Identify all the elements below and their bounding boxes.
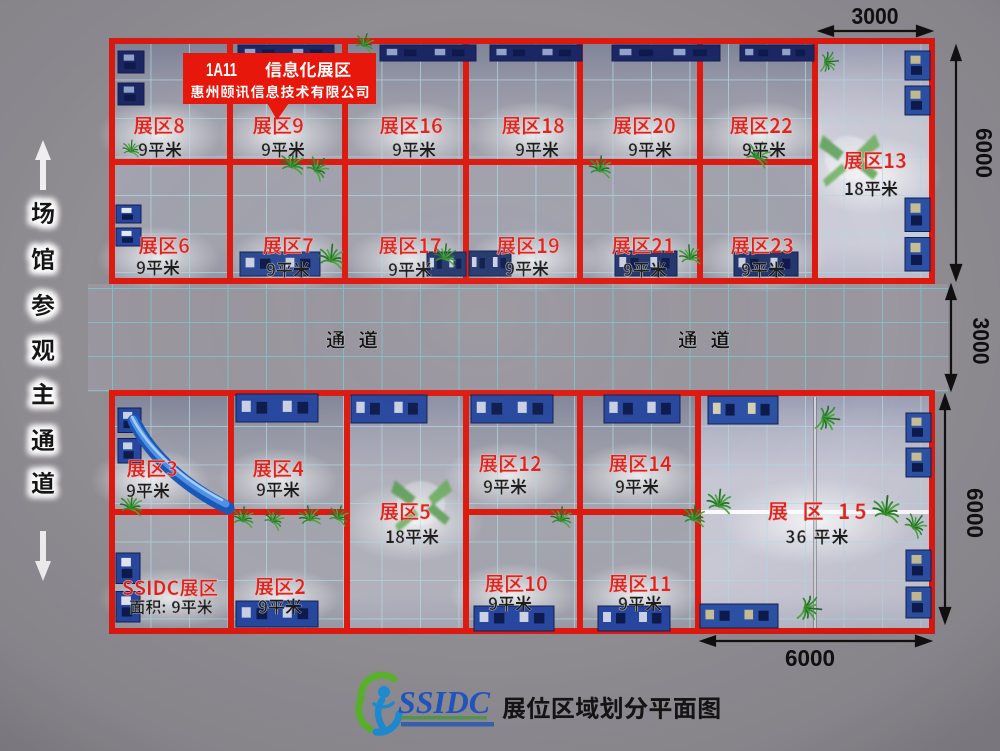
- svg-text:3000: 3000: [852, 3, 899, 29]
- svg-text:6000: 6000: [962, 488, 988, 538]
- svg-text:6000: 6000: [971, 128, 997, 178]
- svg-text:SSIDC: SSIDC: [398, 684, 491, 720]
- svg-text:3000: 3000: [968, 318, 994, 365]
- svg-text:1A11: 1A11: [206, 60, 237, 80]
- svg-text:6000: 6000: [785, 645, 835, 671]
